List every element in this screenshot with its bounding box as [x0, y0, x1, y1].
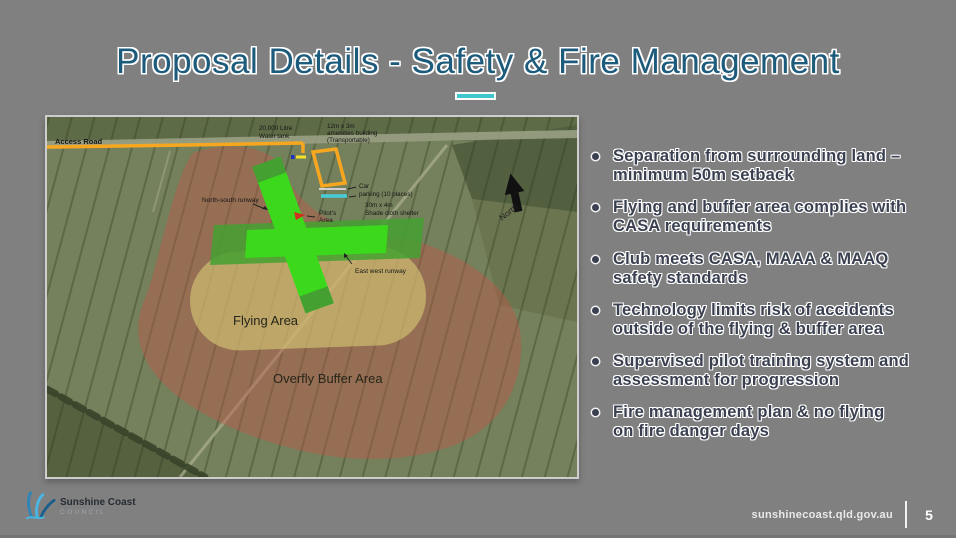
amenities-label-2: amenities building [327, 130, 378, 137]
flying-area-label: Flying Area [233, 313, 299, 328]
sunshine-coast-reeds-icon [24, 488, 56, 522]
bullet-line: Supervised pilot training system and [613, 352, 909, 370]
site-plan-map: Access Road 20,000 Litre Water tank 12m … [45, 115, 579, 479]
list-item: Separation from surrounding land –minimu… [592, 147, 944, 185]
bullet-line: Separation from surrounding land – [613, 147, 900, 165]
north-south-runway-label: North-south runway [202, 197, 259, 204]
list-item: Flying and buffer area complies withCASA… [592, 198, 944, 236]
aerial-map-graphic: Access Road 20,000 Litre Water tank 12m … [47, 117, 577, 477]
logo-subtitle: COUNCIL [60, 510, 136, 517]
water-tank-marker [291, 155, 306, 159]
shade-label-2: Shade cloth shelter [365, 210, 419, 217]
footer-meta: sunshinecoast.qld.gov.au 5 [752, 501, 942, 528]
water-tank-label-1: 20,000 Litre [259, 125, 293, 132]
bullet-icon [592, 307, 599, 314]
logo-name: Sunshine Coast [60, 498, 136, 508]
bullet-icon [592, 204, 599, 211]
overfly-buffer-label: Overfly Buffer Area [273, 371, 383, 386]
list-item: Fire management plan & no flyingon fire … [592, 403, 944, 441]
list-item: Technology limits risk of accidentsoutsi… [592, 301, 944, 339]
east-west-runway-strip-bright [245, 225, 388, 258]
bullet-line: Club meets CASA, MAAA & MAAQ [613, 250, 888, 268]
title-underline [457, 94, 494, 98]
key-points-list: Separation from surrounding land –minimu… [592, 147, 944, 455]
bullet-line: safety standards [613, 269, 747, 287]
bullet-icon [592, 358, 599, 365]
presentation-slide: Proposal Details - Safety & Fire Managem… [0, 0, 956, 538]
bullet-icon [592, 153, 599, 160]
bullet-line: CASA requirements [613, 217, 772, 235]
bullet-icon [592, 409, 599, 416]
pilots-area-label-1: Pilot's [319, 210, 337, 217]
shade-label-1: 30m x 4m [365, 202, 393, 209]
amenities-label-1: 12m x 3m [327, 123, 355, 130]
access-road-label: Access Road [55, 137, 103, 146]
council-logo: Sunshine Coast COUNCIL [24, 488, 136, 522]
amenities-label-3: (Transportable) [327, 137, 370, 144]
page-title: Proposal Details - Safety & Fire Managem… [0, 42, 956, 82]
water-tank-label-2: Water tank [259, 133, 290, 140]
east-west-runway-label: East west runway [355, 268, 407, 275]
bullet-line: outside of the flying & buffer area [613, 320, 883, 338]
bullet-line: Flying and buffer area complies with [613, 198, 906, 216]
bullet-line: Fire management plan & no flying [613, 403, 884, 421]
footer-divider [905, 501, 907, 528]
bullet-line: Technology limits risk of accidents [613, 301, 894, 319]
bullet-line: assessment for progression [613, 371, 839, 389]
footer-website: sunshinecoast.qld.gov.au [752, 509, 893, 521]
bullet-icon [592, 256, 599, 263]
bullet-line: on fire danger days [613, 422, 769, 440]
page-number: 5 [916, 507, 942, 523]
car-parking-label-1: Car [359, 183, 369, 190]
list-item: Supervised pilot training system andasse… [592, 352, 944, 390]
pilots-area-label-2: Area [319, 217, 333, 224]
list-item: Club meets CASA, MAAA & MAAQsafety stand… [592, 250, 944, 288]
bullet-line: minimum 50m setback [613, 166, 794, 184]
car-parking-label-2: parking (10 places) [359, 191, 413, 198]
